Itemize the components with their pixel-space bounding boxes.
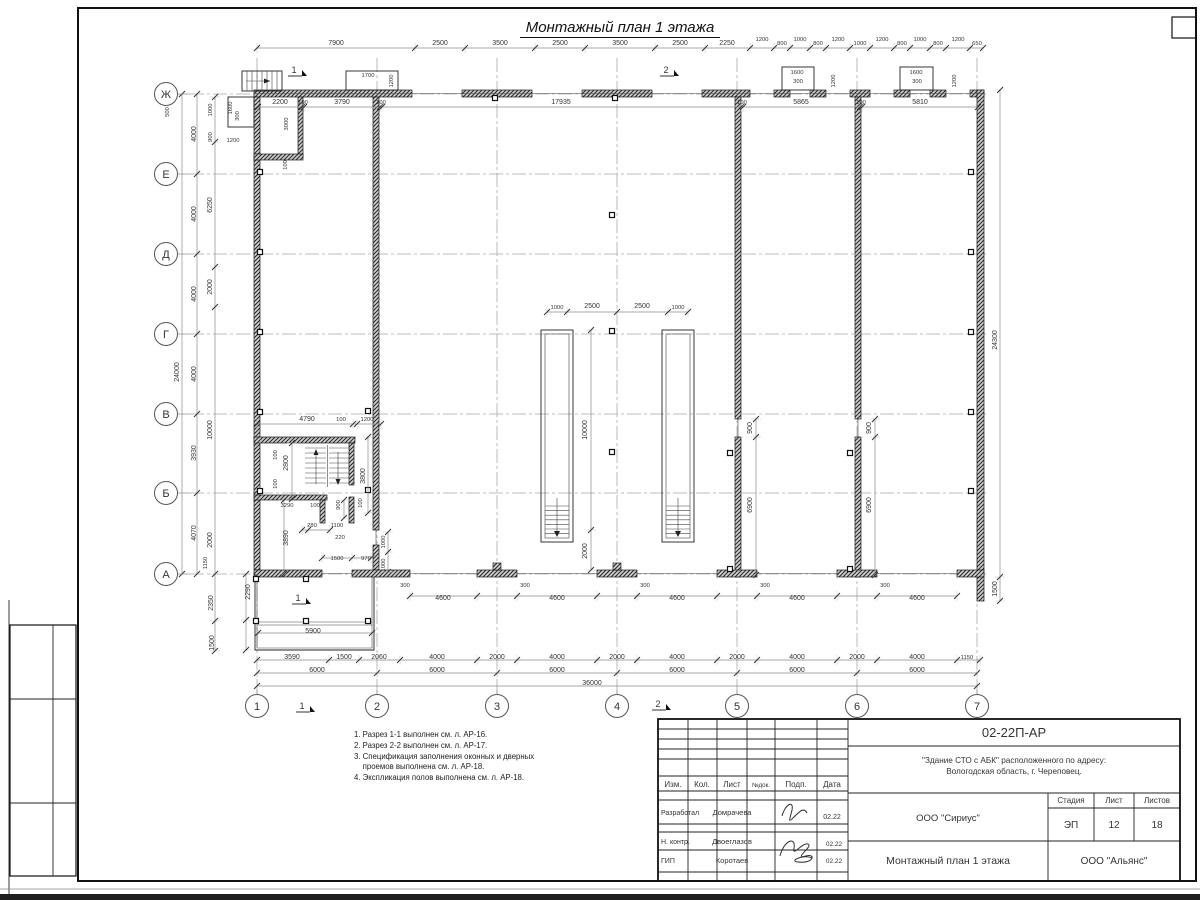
- org-name-right: ООО "Альянс": [1081, 856, 1148, 867]
- column-marker: [969, 410, 974, 415]
- dimension-label: 1100: [331, 523, 343, 529]
- corner-stamp-box: [1172, 17, 1196, 38]
- dimension-label: 4000: [191, 126, 198, 142]
- axis-label: 3: [494, 701, 500, 713]
- dimension-label: 1600: [791, 70, 804, 76]
- dimension-label: 2000: [609, 654, 625, 661]
- sheets-total: 18: [1151, 820, 1163, 831]
- column-marker: [258, 170, 263, 175]
- sheet-label: Лист: [1105, 796, 1123, 805]
- column-marker: [258, 410, 263, 415]
- dimension-label: 970: [361, 556, 371, 562]
- axis-label: Д: [162, 249, 170, 261]
- dimension-label: 6000: [309, 667, 325, 674]
- axis-label: Е: [162, 169, 169, 181]
- dimension-label: 4000: [669, 654, 685, 661]
- axis-label: Ж: [161, 89, 171, 101]
- wall-segment: [855, 437, 861, 577]
- dimension-label: 2000: [207, 532, 214, 548]
- dimension-label: 100: [273, 450, 279, 460]
- column-marker: [366, 409, 371, 414]
- axis-label: 1: [254, 701, 260, 713]
- dimension-label: 4000: [191, 286, 198, 302]
- dimension-label: 1200: [756, 37, 769, 43]
- dimension-labels: 7900250035002500350025002250120080010008…: [165, 37, 999, 687]
- section-mark-arrow: [302, 70, 307, 76]
- drawing-title: Монтажный план 1 этажа: [886, 855, 1010, 867]
- dimension-label: 10000: [207, 420, 214, 440]
- dimension-label: 3290: [281, 503, 294, 509]
- dimension-label: 4000: [549, 654, 565, 661]
- dimension-label: 4000: [191, 206, 198, 222]
- margin-table: [10, 625, 76, 876]
- dimension-label: 100: [376, 100, 386, 106]
- dimension-label: 100: [283, 160, 289, 170]
- dimension-label: 100: [856, 100, 866, 106]
- dimension-label: 1000: [381, 536, 387, 549]
- dimension-label: 6000: [789, 667, 805, 674]
- wall-segment: [717, 570, 757, 577]
- dimension-label: 1000: [914, 37, 927, 43]
- section-mark-label: 2: [663, 65, 668, 75]
- dimension-label: 300: [520, 583, 530, 589]
- column-marker: [848, 451, 853, 456]
- wall-segment: [597, 570, 637, 577]
- dimension-label: 1000: [208, 104, 214, 117]
- dimension-label: 1150: [203, 557, 209, 569]
- dimension-label: 2800: [283, 455, 290, 471]
- dimension-label: 4000: [429, 654, 445, 661]
- org-name: ООО "Сириус": [916, 813, 980, 824]
- dimension-label: 300: [793, 79, 803, 85]
- wall-segment: [957, 570, 984, 577]
- signature-scribble: [780, 841, 812, 862]
- stamp-header-cell: №док.: [752, 782, 770, 789]
- dimension-label: 10000: [582, 420, 589, 440]
- column-marker: [969, 489, 974, 494]
- dimension-label: 3590: [284, 654, 300, 661]
- dimension-label: 6900: [747, 497, 754, 513]
- plan-details: [228, 67, 984, 650]
- column-marker: [366, 619, 371, 624]
- dimension-label: 650: [972, 41, 982, 47]
- dimension-label: 24300: [992, 330, 999, 350]
- dimension-label: 4000: [909, 654, 925, 661]
- section-marks: 11122: [288, 65, 679, 712]
- dimension-label: 4600: [435, 595, 451, 602]
- dimension-label: 1200: [389, 75, 395, 88]
- dimension-label: 280: [307, 523, 317, 529]
- wall-segment: [735, 437, 741, 577]
- dimension-label: 2000: [489, 654, 505, 661]
- dimension-label: 4600: [549, 595, 565, 602]
- dimension-label: 3500: [492, 40, 508, 47]
- dimension-label: 2250: [719, 40, 735, 47]
- dimension-label: 4600: [789, 595, 805, 602]
- dimension-label: 1500: [336, 654, 352, 661]
- dimension-label: 3500: [612, 40, 628, 47]
- section-mark-arrow: [666, 704, 671, 710]
- wall-segment: [735, 97, 741, 419]
- dimension-label: 300: [400, 583, 410, 589]
- section-mark-arrow: [674, 70, 679, 76]
- wall-segment: [837, 570, 877, 577]
- column-markers: [254, 96, 974, 624]
- dimension-label: 1000: [854, 41, 867, 47]
- column-marker: [258, 330, 263, 335]
- dimension-label: 3000: [284, 118, 290, 131]
- section-mark-arrow: [306, 598, 311, 604]
- axis-label: Г: [163, 329, 169, 341]
- column-marker: [613, 96, 618, 101]
- wall-segment: [493, 563, 501, 570]
- axis-label: В: [162, 409, 169, 421]
- dimension-label: 6900: [866, 497, 873, 513]
- dimension-label: 24000: [174, 362, 181, 382]
- wall-segment: [254, 570, 322, 577]
- dimension-label: 2060: [371, 654, 387, 661]
- dimension-label: 800: [897, 41, 907, 47]
- dimension-label: 1200: [831, 75, 837, 88]
- stair-arrowhead: [314, 449, 319, 455]
- dimension-label: 6000: [909, 667, 925, 674]
- wall-segment: [349, 443, 354, 485]
- dimension-label: 2500: [432, 40, 448, 47]
- dimension-label: 800: [813, 41, 823, 47]
- dimension-label: 4070: [191, 525, 198, 541]
- column-marker: [254, 619, 259, 624]
- dimension-label: 900: [747, 422, 754, 434]
- dimension-label: 36000: [582, 680, 602, 687]
- dimension-label: 4000: [789, 654, 805, 661]
- wall-segment: [349, 497, 354, 523]
- column-marker: [304, 577, 309, 582]
- dimension-label: 6250: [207, 197, 214, 213]
- wall-segment: [254, 154, 303, 160]
- dimension-label: 3790: [334, 99, 350, 106]
- stamp-name: Коротаев: [716, 856, 748, 865]
- notes-block: 1. Разрез 1-1 выполнен см. л. АР-16. 2. …: [354, 730, 534, 784]
- stair-arrowhead: [336, 479, 341, 485]
- axis-label: 5: [734, 701, 740, 713]
- column-marker: [258, 489, 263, 494]
- dimension-label: 2200: [272, 99, 288, 106]
- dimension-label: 2000: [582, 543, 589, 559]
- stamp-header-cell: Изм.: [664, 780, 681, 789]
- dimension-label: 1150: [961, 655, 973, 661]
- dimension-label: 1600: [228, 102, 234, 115]
- section-mark-label: 2: [655, 699, 660, 709]
- dimension-label: 6000: [429, 667, 445, 674]
- annex-outer-wall: [255, 574, 374, 650]
- dimension-label: 2000: [207, 279, 214, 295]
- dimension-label: 1600: [910, 70, 923, 76]
- column-marker: [728, 567, 733, 572]
- column-marker: [848, 567, 853, 572]
- dimension-label: 300: [912, 79, 922, 85]
- column-marker: [969, 330, 974, 335]
- column-marker: [610, 329, 615, 334]
- dimension-label: 3800: [360, 468, 367, 484]
- pit-stair-arrowhead: [554, 531, 560, 537]
- dimension-label: 300: [640, 583, 650, 589]
- axis-grid: [190, 58, 988, 696]
- axis-label: Б: [162, 488, 169, 500]
- dimension-label: 100: [298, 100, 308, 106]
- signature-scribble: [782, 804, 807, 820]
- stage-value: ЭП: [1064, 820, 1078, 831]
- dimension-label: 1200: [876, 37, 889, 43]
- dimension-label: 1500: [992, 581, 999, 597]
- stamp-date: 02.22: [826, 858, 843, 865]
- column-marker: [728, 451, 733, 456]
- column-marker: [258, 250, 263, 255]
- dimension-label: 800: [777, 41, 787, 47]
- section-mark-arrow: [310, 706, 315, 712]
- floor-plan-svg: 7900250035002500350025002250120080010008…: [0, 0, 1200, 900]
- dimension-label: 100: [737, 100, 747, 106]
- dimension-label: 4790: [299, 416, 315, 423]
- dimension-label: 3890: [283, 530, 290, 546]
- wall-segment: [613, 563, 621, 570]
- dimension-label: 7900: [328, 40, 344, 47]
- doc-number: 02-22П-АР: [982, 725, 1046, 740]
- dimension-label: 100: [336, 417, 346, 423]
- stamp-header-cell: Лист: [723, 780, 741, 789]
- stamp-role: Разработал: [661, 809, 699, 817]
- axis-label: 7: [974, 701, 980, 713]
- column-marker: [969, 170, 974, 175]
- dimension-label: 5865: [793, 99, 809, 106]
- dimension-label: 900: [336, 500, 342, 510]
- column-marker: [610, 213, 615, 218]
- scan-edge-strip: [0, 894, 1200, 900]
- dimension-label: 5900: [305, 628, 321, 635]
- dimension-label: 1200: [361, 417, 374, 423]
- dimension-label: 1500: [331, 556, 344, 562]
- dimension-label: 1000: [381, 559, 387, 572]
- dimension-label: 300: [235, 111, 241, 121]
- dimension-label: 1700: [362, 73, 375, 79]
- sheet-number: 12: [1108, 820, 1120, 831]
- project-name-line: "Здание СТО с АБК" расположенного по адр…: [922, 756, 1106, 765]
- dimension-label: 2290: [245, 584, 252, 600]
- dimension-label: 2350: [208, 595, 215, 611]
- dimension-label: 220: [335, 535, 345, 541]
- stamp-header-cell: Кол.: [694, 780, 710, 789]
- page-title: Монтажный план 1 этажа: [440, 19, 800, 36]
- dimension-label: 17935: [551, 99, 571, 106]
- wall-segment: [373, 97, 379, 530]
- dimension-label: 2500: [584, 303, 600, 310]
- dimension-label: 300: [760, 583, 770, 589]
- dimension-label: 800: [933, 41, 943, 47]
- column-marker: [254, 577, 259, 582]
- axis-label: 2: [374, 701, 380, 713]
- stamp-role: ГИП: [661, 858, 675, 865]
- wall-segment: [477, 570, 517, 577]
- annex-inner-wall: [257, 574, 372, 648]
- axis-label: 6: [854, 701, 860, 713]
- dimension-label: 4600: [669, 595, 685, 602]
- dimension-label: 900: [208, 132, 214, 142]
- dimension-label: 1200: [227, 138, 240, 144]
- dimension-label: 1200: [952, 37, 965, 43]
- stamp-header-cell: Дата: [823, 780, 841, 789]
- dimension-label: 2500: [552, 40, 568, 47]
- dimension-label: 6000: [549, 667, 565, 674]
- wall-segment: [320, 500, 325, 523]
- dimension-label: 6000: [669, 667, 685, 674]
- stamp-name: Домрачева: [713, 808, 753, 817]
- dimension-label: 100: [273, 479, 279, 489]
- drawing-frame: [78, 8, 1196, 881]
- dimension-label: 100: [358, 498, 364, 508]
- title-block: Изм.Кол.Лист№док.Подп.ДатаРазработалДомр…: [658, 719, 1180, 881]
- stamp-date: 02.22: [826, 841, 843, 848]
- stage-label: Стадия: [1057, 796, 1084, 805]
- stamp-header-cell: Подп.: [785, 780, 806, 789]
- wall-segment: [977, 90, 984, 601]
- dimension-label: 1000: [551, 305, 564, 311]
- dimension-label: 4000: [191, 366, 198, 382]
- sheets-label: Листов: [1144, 796, 1170, 805]
- dimension-label: 2500: [672, 40, 688, 47]
- section-mark-label: 1: [299, 701, 304, 711]
- walls: [254, 90, 984, 601]
- wall-segment: [254, 437, 355, 443]
- wall-segment: [855, 97, 861, 419]
- column-marker: [610, 450, 615, 455]
- dimension-label: 500: [165, 107, 171, 117]
- column-marker: [493, 96, 498, 101]
- section-mark-label: 1: [291, 65, 296, 75]
- dimension-label: 5810: [912, 99, 928, 106]
- dimension-label: 2000: [849, 654, 865, 661]
- stamp-role: Н. контр.: [661, 839, 690, 846]
- dimension-label: 3930: [191, 445, 198, 461]
- stamp-date: 02.22: [823, 814, 841, 821]
- axis-label: А: [162, 569, 170, 581]
- dimension-label: 2500: [634, 303, 650, 310]
- dimension-label: 1000: [672, 305, 685, 311]
- project-name-line: Вологодская область, г. Череповец.: [946, 767, 1082, 776]
- axis-label: 4: [614, 701, 620, 713]
- dimension-label: 4600: [909, 595, 925, 602]
- section-mark-label: 1: [295, 593, 300, 603]
- drawing-sheet: 7900250035002500350025002250120080010008…: [0, 0, 1200, 900]
- dimension-label: 2000: [729, 654, 745, 661]
- column-marker: [304, 619, 309, 624]
- wall-segment: [373, 545, 379, 570]
- dimension-label: 900: [866, 422, 873, 434]
- dimension-label: 300: [880, 583, 890, 589]
- dimension-label: 1500: [209, 635, 216, 651]
- dimension-label: 1000: [794, 37, 807, 43]
- pit-stair-arrowhead: [675, 531, 681, 537]
- dimension-label: 1200: [952, 75, 958, 88]
- dimension-label: 1200: [832, 37, 845, 43]
- stamp-name: Двоеглазов: [712, 837, 752, 846]
- column-marker: [969, 250, 974, 255]
- dimension-label: 100: [310, 503, 320, 509]
